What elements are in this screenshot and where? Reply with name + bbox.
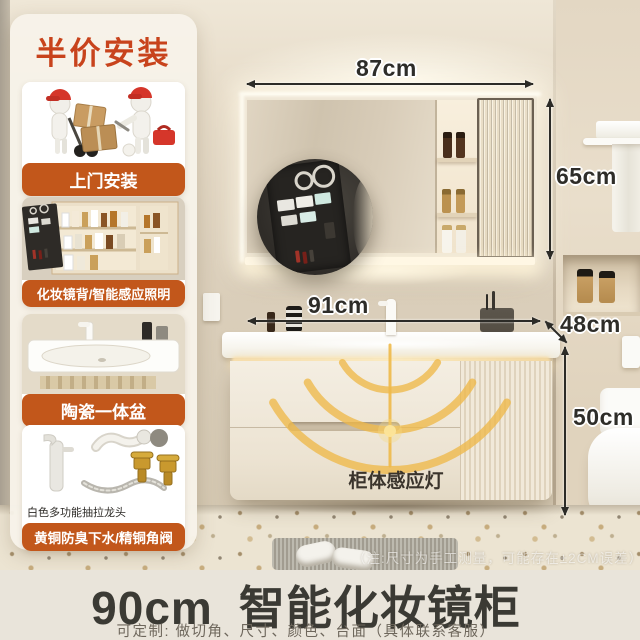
- drawer-handle: [288, 422, 400, 431]
- banner-basin: 陶瓷一体盆: [22, 394, 185, 427]
- basin-illustration: [22, 314, 185, 394]
- dim-arrow-vanity-width: [248, 320, 540, 322]
- dim-label-vanity-width: 91cm: [308, 292, 369, 319]
- organizer-card: [281, 214, 298, 226]
- organizer-ring: [311, 163, 337, 189]
- makeup-brush: [486, 294, 488, 310]
- organizer-card: [296, 195, 314, 208]
- card-faucet: 白色多功能抽拉龙头 黄铜防臭下水/精铜角阀: [22, 425, 185, 551]
- white-bottle: [442, 225, 452, 253]
- banner-mirror-back: 化妆镜背/智能感应照明: [22, 280, 185, 307]
- banner-drain: 黄铜防臭下水/精铜角阀: [22, 523, 185, 551]
- open-shelves: [437, 100, 477, 253]
- brown-bottle: [456, 132, 465, 158]
- amber-soap-bottle: [577, 269, 593, 303]
- amber-soap-bottle: [599, 271, 615, 303]
- customize-note: 可定制: 做切角、尺寸、颜色、台面（具体联系客服）: [0, 620, 626, 640]
- diffuser-bottle: [267, 312, 275, 332]
- vanity-floor-shadow: [245, 498, 545, 514]
- makeup-brush: [492, 291, 495, 310]
- basin-highlight: [282, 338, 502, 350]
- dim-label-vanity-height: 50cm: [573, 404, 634, 431]
- dim-arrow-vanity-height: [564, 347, 566, 515]
- folded-towel: [596, 121, 640, 139]
- organizer-card: [277, 199, 295, 212]
- wall-niche: [563, 255, 640, 312]
- lipstick: [309, 250, 314, 262]
- sensor-light-label: 柜体感应灯: [341, 466, 451, 493]
- dim-arrow-mirror-height: [549, 99, 551, 259]
- mirror-back-organizer-inset: [257, 159, 373, 275]
- gold-bottle: [456, 189, 465, 213]
- vanity-fluted-door: [460, 361, 552, 500]
- banner-install: 上门安装: [22, 163, 185, 196]
- faucet-spout: [378, 301, 388, 306]
- dim-label-mirror-width: 87cm: [356, 55, 417, 82]
- faucet-set-illustration: [22, 425, 185, 502]
- vanity-countertop: [222, 332, 560, 358]
- mirror-led-left: [240, 95, 244, 263]
- dim-label-vanity-depth: 48cm: [560, 311, 621, 338]
- half-price-install-badge: 半价安装: [10, 28, 197, 73]
- card-install: 上门安装: [22, 82, 185, 196]
- lipstick: [302, 251, 307, 263]
- mirror-led-top: [239, 92, 541, 96]
- inset-shelf-edge: [353, 177, 373, 261]
- gold-bottle: [442, 189, 451, 213]
- shelf-board: [437, 213, 477, 217]
- organizer-pocket: [324, 222, 336, 239]
- stacked-jars: [286, 306, 302, 332]
- dim-arrow-mirror-width: [247, 83, 533, 85]
- flush-plate: [622, 336, 640, 368]
- product-poster: 柜体感应灯 87cm 65cm 91cm 48cm 50cm （注:尺寸为手工测…: [0, 0, 640, 640]
- white-bottle: [456, 225, 466, 253]
- title-strip: 90cm 智能化妆镜柜 可定制: 做切角、尺寸、颜色、台面（具体联系客服）: [0, 570, 640, 640]
- left-wall-edge: [0, 0, 10, 570]
- organizer-panel: [265, 159, 352, 275]
- shelf-board: [437, 158, 477, 162]
- organizer-card: [299, 211, 316, 223]
- organizer-card: [314, 192, 331, 205]
- brown-bottle: [443, 132, 452, 158]
- promo-sidebar: 半价安装: [10, 14, 197, 550]
- card-mirror-back: 化妆镜背/智能感应照明: [22, 197, 185, 307]
- faucet: [386, 299, 396, 335]
- installers-illustration: [22, 82, 185, 163]
- fluted-glass-door: [477, 98, 534, 258]
- measure-note: （注:尺寸为手工测量，可能存在±2CM误差）: [352, 547, 640, 567]
- mirror-cabinet-illustration: [22, 197, 185, 280]
- dim-label-mirror-height: 65cm: [556, 163, 617, 190]
- faucet-caption: 白色多功能抽拉龙头: [22, 502, 185, 523]
- light-switch: [203, 293, 220, 321]
- card-basin: 陶瓷一体盆: [22, 314, 185, 427]
- lipstick: [295, 250, 300, 262]
